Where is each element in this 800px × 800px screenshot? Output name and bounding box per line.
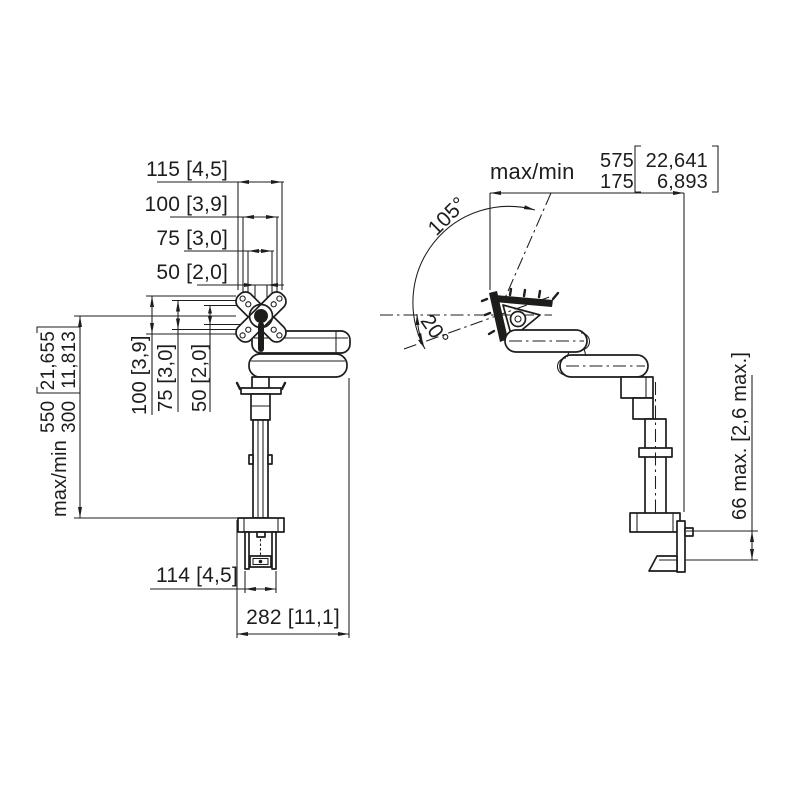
arrow-left-icon bbox=[237, 632, 248, 636]
arrow-up-icon bbox=[208, 306, 212, 314]
arrow-up-icon bbox=[750, 531, 754, 542]
side-arm bbox=[505, 330, 648, 377]
dim-vesa-width-50-label: 50 [2,0] bbox=[156, 261, 228, 284]
dim-vesa-width-115-label: 115 [4,5] bbox=[146, 158, 228, 181]
arrow-right-icon bbox=[244, 283, 255, 287]
dim-clamp-width-label: 114 [4,5] bbox=[156, 564, 238, 587]
arrow-left-icon bbox=[243, 215, 254, 219]
arrow-up-icon bbox=[150, 296, 154, 307]
height-range-prefix: max/min bbox=[49, 440, 71, 517]
arc-arrow-icon bbox=[524, 205, 535, 210]
arrow-down-icon bbox=[208, 317, 212, 325]
dim-total-width-label: 282 [11,1] bbox=[246, 606, 340, 629]
arrow-left-icon bbox=[245, 587, 256, 591]
front-pole bbox=[237, 377, 285, 518]
vesa-stem bbox=[258, 322, 264, 352]
front-view: 115 [4,5] 100 [3,9] 75 [3,0] 50 [2,0] bbox=[37, 158, 350, 638]
side-desk-clamp bbox=[630, 513, 693, 572]
reach-range-max-in: 22,641 bbox=[646, 150, 708, 172]
side-view: max/min 575 175 22,641 6,893 105° 20 bbox=[380, 146, 758, 572]
front-dim-vesa-heights: 100 [3,9] 75 [3,0] 50 [2,0] bbox=[129, 296, 240, 415]
dim-vesa-height-100-label: 100 [3,9] bbox=[129, 335, 151, 415]
pole-tube bbox=[253, 420, 268, 518]
arrow-down-icon bbox=[176, 319, 180, 330]
height-range-max-in: 21,655 bbox=[38, 331, 59, 390]
clamp-screw-head bbox=[257, 532, 265, 537]
dim-vesa-width-100-label: 100 [3,9] bbox=[144, 193, 228, 216]
clamp-foot bbox=[649, 556, 677, 571]
desk-thickness-label: 66 max. [2,6 max.] bbox=[729, 352, 751, 520]
side-dim-desk-thickness: 66 max. [2,6 max.] bbox=[686, 352, 758, 560]
tilt-pivot bbox=[511, 312, 526, 327]
monitor-arm-dimension-drawing: 115 [4,5] 100 [3,9] 75 [3,0] 50 [2,0] bbox=[0, 0, 800, 800]
dim-vesa-height-75-label: 75 [3,0] bbox=[155, 344, 177, 412]
arrow-up-icon bbox=[176, 301, 180, 312]
arrow-right-icon bbox=[271, 180, 282, 184]
reach-range-prefix: max/min bbox=[490, 159, 575, 184]
vesa-center-knob bbox=[254, 309, 268, 323]
arrow-right-icon bbox=[338, 632, 349, 636]
arrow-right-icon bbox=[261, 249, 272, 253]
technical-drawing-page: 115 [4,5] 100 [3,9] 75 [3,0] 50 [2,0] bbox=[0, 0, 800, 800]
clamp-screw bbox=[685, 528, 693, 536]
reach-range-min-mm: 175 bbox=[600, 171, 634, 193]
angle-up-label: 105° bbox=[424, 193, 472, 241]
height-range-min-in: 11,813 bbox=[59, 331, 80, 389]
arrow-down-icon bbox=[750, 549, 754, 560]
side-pole bbox=[621, 377, 672, 528]
clamp-wall bbox=[272, 532, 276, 569]
clamp-spine bbox=[677, 521, 685, 572]
height-range-min-mm: 300 bbox=[59, 401, 80, 433]
front-dim-bottom: 114 [4,5] 282 [11,1] bbox=[150, 378, 349, 638]
arrow-left-icon bbox=[490, 191, 501, 195]
arrow-left-icon bbox=[248, 249, 259, 253]
reach-range-min-in: 6,893 bbox=[657, 171, 708, 193]
height-range-label: max/min 550 300 21,655 11,813 bbox=[37, 327, 80, 517]
clamp-top-plate bbox=[238, 518, 284, 532]
arrow-down-icon bbox=[150, 323, 154, 334]
arrow-right-icon bbox=[265, 587, 276, 591]
front-desk-clamp bbox=[238, 518, 284, 569]
arrow-up-icon bbox=[78, 316, 82, 327]
arrow-down-icon bbox=[78, 507, 82, 518]
arrow-right-icon bbox=[266, 215, 277, 219]
height-range-max-mm: 550 bbox=[38, 401, 59, 433]
bracket-open bbox=[635, 146, 641, 192]
front-lower-arm bbox=[249, 354, 347, 377]
bracket-close bbox=[712, 146, 718, 192]
dim-vesa-height-50-label: 50 [2,0] bbox=[189, 344, 211, 412]
clamp-wall bbox=[245, 532, 249, 569]
front-dim-vesa-widths: 115 [4,5] 100 [3,9] 75 [3,0] 50 [2,0] bbox=[144, 158, 284, 298]
front-arm bbox=[249, 331, 350, 377]
pole-collar bbox=[241, 388, 281, 394]
arrow-left-icon bbox=[238, 180, 249, 184]
pole-bracket bbox=[621, 377, 653, 398]
reach-range-max-mm: 575 bbox=[600, 150, 634, 172]
dim-vesa-width-75-label: 75 [3,0] bbox=[156, 227, 228, 250]
